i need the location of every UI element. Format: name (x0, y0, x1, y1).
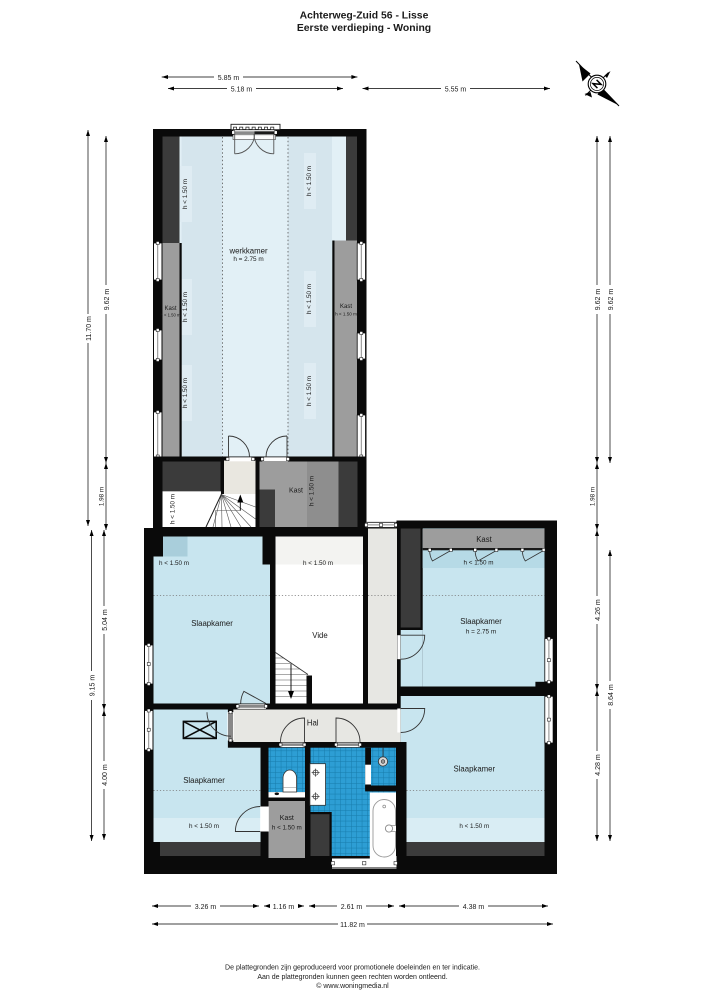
svg-text:h < 1.50 m: h < 1.50 m (182, 378, 189, 408)
svg-text:Kast: Kast (164, 306, 176, 312)
svg-text:h < 1.50 m: h < 1.50 m (335, 312, 357, 317)
svg-text:© www.woningmedia.nl: © www.woningmedia.nl (316, 982, 389, 990)
svg-text:4.28 m: 4.28 m (595, 754, 602, 776)
svg-text:2.61 m: 2.61 m (341, 904, 363, 911)
svg-text:1.98 m: 1.98 m (99, 487, 106, 506)
svg-text:Slaapkamer: Slaapkamer (191, 619, 233, 628)
svg-text:Slaapkamer: Slaapkamer (183, 776, 225, 785)
svg-text:8.64 m: 8.64 m (608, 684, 615, 706)
svg-text:4.38 m: 4.38 m (463, 904, 485, 911)
svg-text:h < 1.50 m: h < 1.50 m (189, 823, 219, 830)
svg-text:11.70 m: 11.70 m (86, 316, 93, 341)
svg-text:h < 1.50 m: h < 1.50 m (306, 166, 313, 196)
svg-text:Kast: Kast (476, 535, 492, 544)
svg-text:h < 1.50 m: h < 1.50 m (309, 476, 316, 506)
svg-text:3.26 m: 3.26 m (195, 904, 217, 911)
svg-text:Slaapkamer: Slaapkamer (460, 617, 502, 626)
svg-text:1.16 m: 1.16 m (273, 904, 295, 911)
svg-text:1.98 m: 1.98 m (590, 487, 597, 506)
svg-text:Slaapkamer: Slaapkamer (453, 765, 495, 774)
svg-text:h < 1.50 m: h < 1.50 m (303, 560, 333, 567)
svg-text:9.15 m: 9.15 m (89, 675, 96, 697)
svg-text:4.00 m: 4.00 m (102, 764, 109, 786)
svg-text:h < 1.50 m: h < 1.50 m (159, 560, 189, 567)
svg-text:Kast: Kast (340, 304, 352, 310)
svg-text:h < 1.50 m: h < 1.50 m (306, 284, 313, 314)
svg-text:5.18 m: 5.18 m (231, 86, 253, 93)
svg-text:h < 1.50 m: h < 1.50 m (464, 560, 494, 567)
svg-text:h = 2.75 m: h = 2.75 m (233, 256, 263, 263)
svg-text:h < 1.50 m: h < 1.50 m (306, 376, 313, 406)
svg-text:9.62 m: 9.62 m (608, 289, 615, 311)
svg-text:Aan de plattegronden kunnen ge: Aan de plattegronden kunnen geen rechten… (257, 974, 447, 981)
svg-text:h < 1.50 m: h < 1.50 m (182, 179, 189, 209)
svg-text:5.85 m: 5.85 m (218, 75, 240, 82)
svg-text:h < 1.50 m: h < 1.50 m (459, 823, 489, 830)
svg-text:Achterweg-Zuid 56 - Lisse: Achterweg-Zuid 56 - Lisse (300, 11, 429, 22)
svg-text:5.55 m: 5.55 m (445, 86, 467, 93)
svg-text:Hal: Hal (307, 719, 319, 728)
svg-text:5.04 m: 5.04 m (102, 609, 109, 631)
svg-text:9.62 m: 9.62 m (104, 289, 111, 311)
svg-text:Kast: Kast (289, 488, 303, 495)
svg-text:h < 1.50 m: h < 1.50 m (170, 494, 177, 524)
svg-text:h < 1.50 m: h < 1.50 m (272, 825, 302, 832)
svg-text:4.26 m: 4.26 m (595, 599, 602, 621)
svg-text:Eerste verdieping - Woning: Eerste verdieping - Woning (297, 23, 431, 34)
svg-text:h = 2.75 m: h = 2.75 m (466, 629, 496, 636)
svg-text:h < 1.50 m: h < 1.50 m (182, 292, 189, 322)
svg-text:Vide: Vide (312, 631, 327, 640)
svg-text:De plattegronden zijn geproduc: De plattegronden zijn geproduceerd voor … (225, 965, 480, 972)
svg-text:h < 1.50 m: h < 1.50 m (161, 313, 181, 318)
svg-text:werkkamer: werkkamer (228, 247, 268, 256)
svg-text:9.62 m: 9.62 m (595, 289, 602, 311)
svg-text:11.82 m: 11.82 m (340, 922, 365, 929)
svg-text:Kast: Kast (280, 815, 294, 822)
